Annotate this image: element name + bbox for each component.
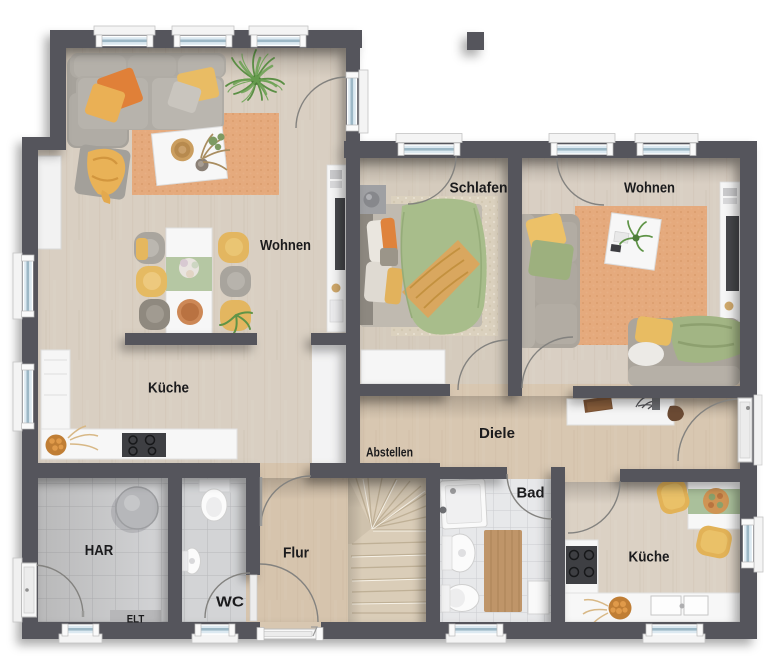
svg-text:HAR: HAR	[85, 542, 114, 559]
svg-text:Wohnen: Wohnen	[624, 180, 675, 197]
svg-text:WC: WC	[216, 594, 244, 611]
svg-text:Abstellen: Abstellen	[366, 445, 413, 460]
svg-text:Schlafen: Schlafen	[450, 180, 508, 197]
svg-text:Küche: Küche	[629, 549, 670, 566]
svg-text:Bad: Bad	[517, 485, 545, 502]
svg-text:Wohnen: Wohnen	[260, 237, 311, 254]
svg-text:Diele: Diele	[479, 425, 515, 442]
svg-text:ELT: ELT	[127, 614, 145, 626]
svg-text:Küche: Küche	[148, 380, 189, 397]
svg-text:Flur: Flur	[283, 545, 309, 562]
